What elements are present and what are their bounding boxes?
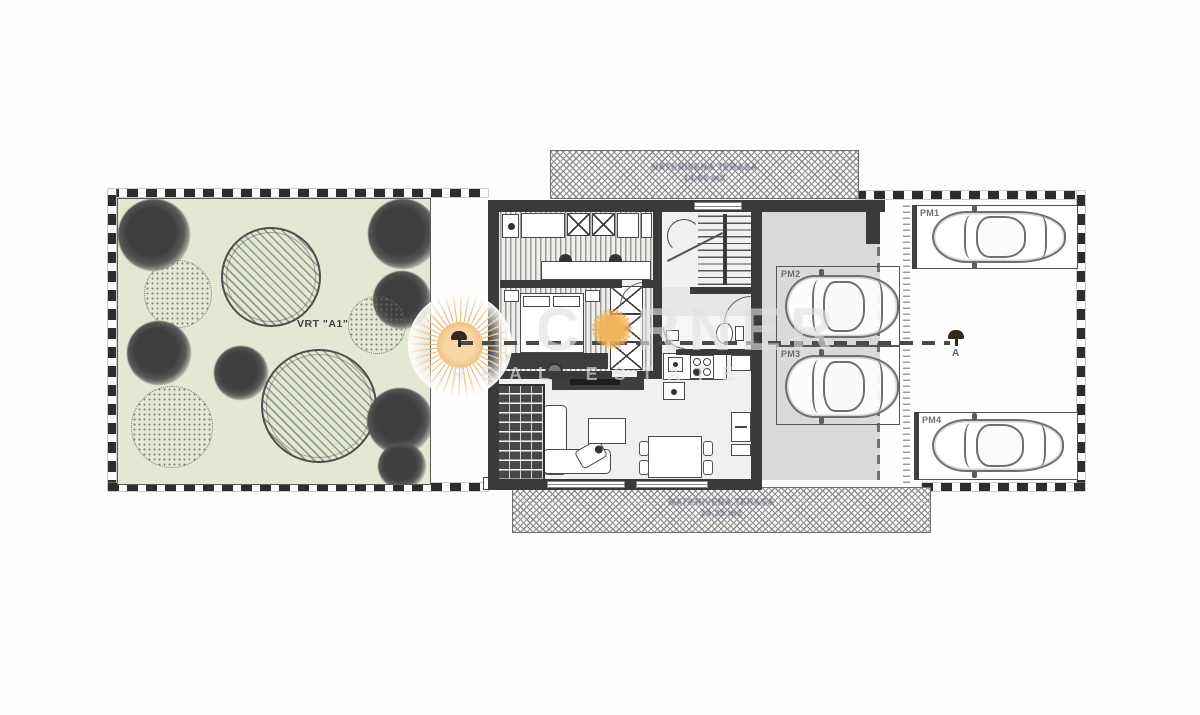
section-marker-icon <box>451 331 467 347</box>
boundary-hatch-parking-top <box>855 191 1085 199</box>
section-label: A <box>952 348 959 359</box>
bed-single <box>617 213 639 238</box>
dining-chair <box>703 460 713 475</box>
interior-wall <box>642 280 653 288</box>
wall-stub <box>866 212 880 244</box>
window <box>694 202 742 210</box>
building-wall-top <box>488 200 885 212</box>
watermark-text: C <box>536 295 588 364</box>
garden-tree-icon <box>221 227 321 327</box>
parking-edge-bar <box>912 205 917 269</box>
stair-rail <box>723 214 727 285</box>
boundary-hatch-parking-right <box>1077 191 1085 491</box>
interior-wall <box>690 287 751 294</box>
boundary-hatch-garden-left <box>108 189 116 491</box>
terrace-bottom: NATKRIVENA TERASA 24,35 m2 <box>512 487 931 533</box>
terrace-bottom-area-label: 24,35 m2 <box>513 508 930 519</box>
terrace-top-area-label: 14,60 m2 <box>551 173 858 184</box>
window <box>547 481 625 488</box>
watermark-sun-icon <box>592 309 632 349</box>
garden-shrub-icon <box>348 296 406 354</box>
brick-wall-block <box>496 384 545 482</box>
nightstand <box>502 214 519 238</box>
bed-single <box>521 213 565 238</box>
terrace-top-label: NATKRIVENA TERASA <box>551 162 858 173</box>
section-marker-icon <box>948 330 964 346</box>
car-icon <box>932 211 1066 263</box>
desk-lamp-icon <box>609 254 622 262</box>
garden-shrub-icon <box>144 260 212 328</box>
dining-chair <box>639 441 649 456</box>
terrace-bottom-label: NATKRIVENA TERASA <box>513 497 930 508</box>
coffee-table <box>588 418 626 444</box>
terrace-top: NATKRIVENA TERASA 14,60 m2 <box>550 150 859 199</box>
floor-plan-canvas: VRT "A1" NATKRIVENA TERASA 14,60 m2 NATK… <box>0 0 1200 715</box>
car-icon <box>932 419 1064 472</box>
dining-table <box>648 436 702 478</box>
car-icon <box>785 355 899 418</box>
watermark-brand: C RNER <box>536 298 842 360</box>
garden-bush-icon <box>214 346 268 400</box>
garden-bush-icon <box>127 321 191 385</box>
watermark-subtitle: REAL ESTATE <box>452 364 750 385</box>
watermark-text: RNER <box>636 295 842 364</box>
garden-bush-icon <box>378 443 426 485</box>
boundary-hatch-parking-bottom <box>922 483 1085 491</box>
window <box>636 481 708 488</box>
boundary-hatch-garden-top <box>108 189 488 197</box>
garden-shrub-icon <box>131 386 213 468</box>
kitchen-cabinet <box>731 444 751 456</box>
garden-area: VRT "A1" <box>117 198 431 485</box>
nightstand <box>641 213 652 238</box>
desk <box>541 261 651 280</box>
garden-label: VRT "A1" <box>297 318 348 330</box>
garden-bush-icon <box>368 199 431 269</box>
desk-lamp-icon <box>559 254 572 262</box>
nightstand <box>504 290 519 302</box>
dining-chair <box>703 441 713 456</box>
stair-arrow <box>667 219 701 253</box>
building-wall-bottom <box>488 479 762 490</box>
fridge <box>731 412 751 442</box>
wardrobe-icon <box>592 213 615 236</box>
parking-edge-bar <box>914 412 919 480</box>
garden-tree-icon <box>261 349 377 463</box>
stairs <box>662 212 751 287</box>
interior-wall <box>500 280 622 288</box>
wardrobe-icon <box>567 213 590 236</box>
dining-chair <box>639 460 649 475</box>
